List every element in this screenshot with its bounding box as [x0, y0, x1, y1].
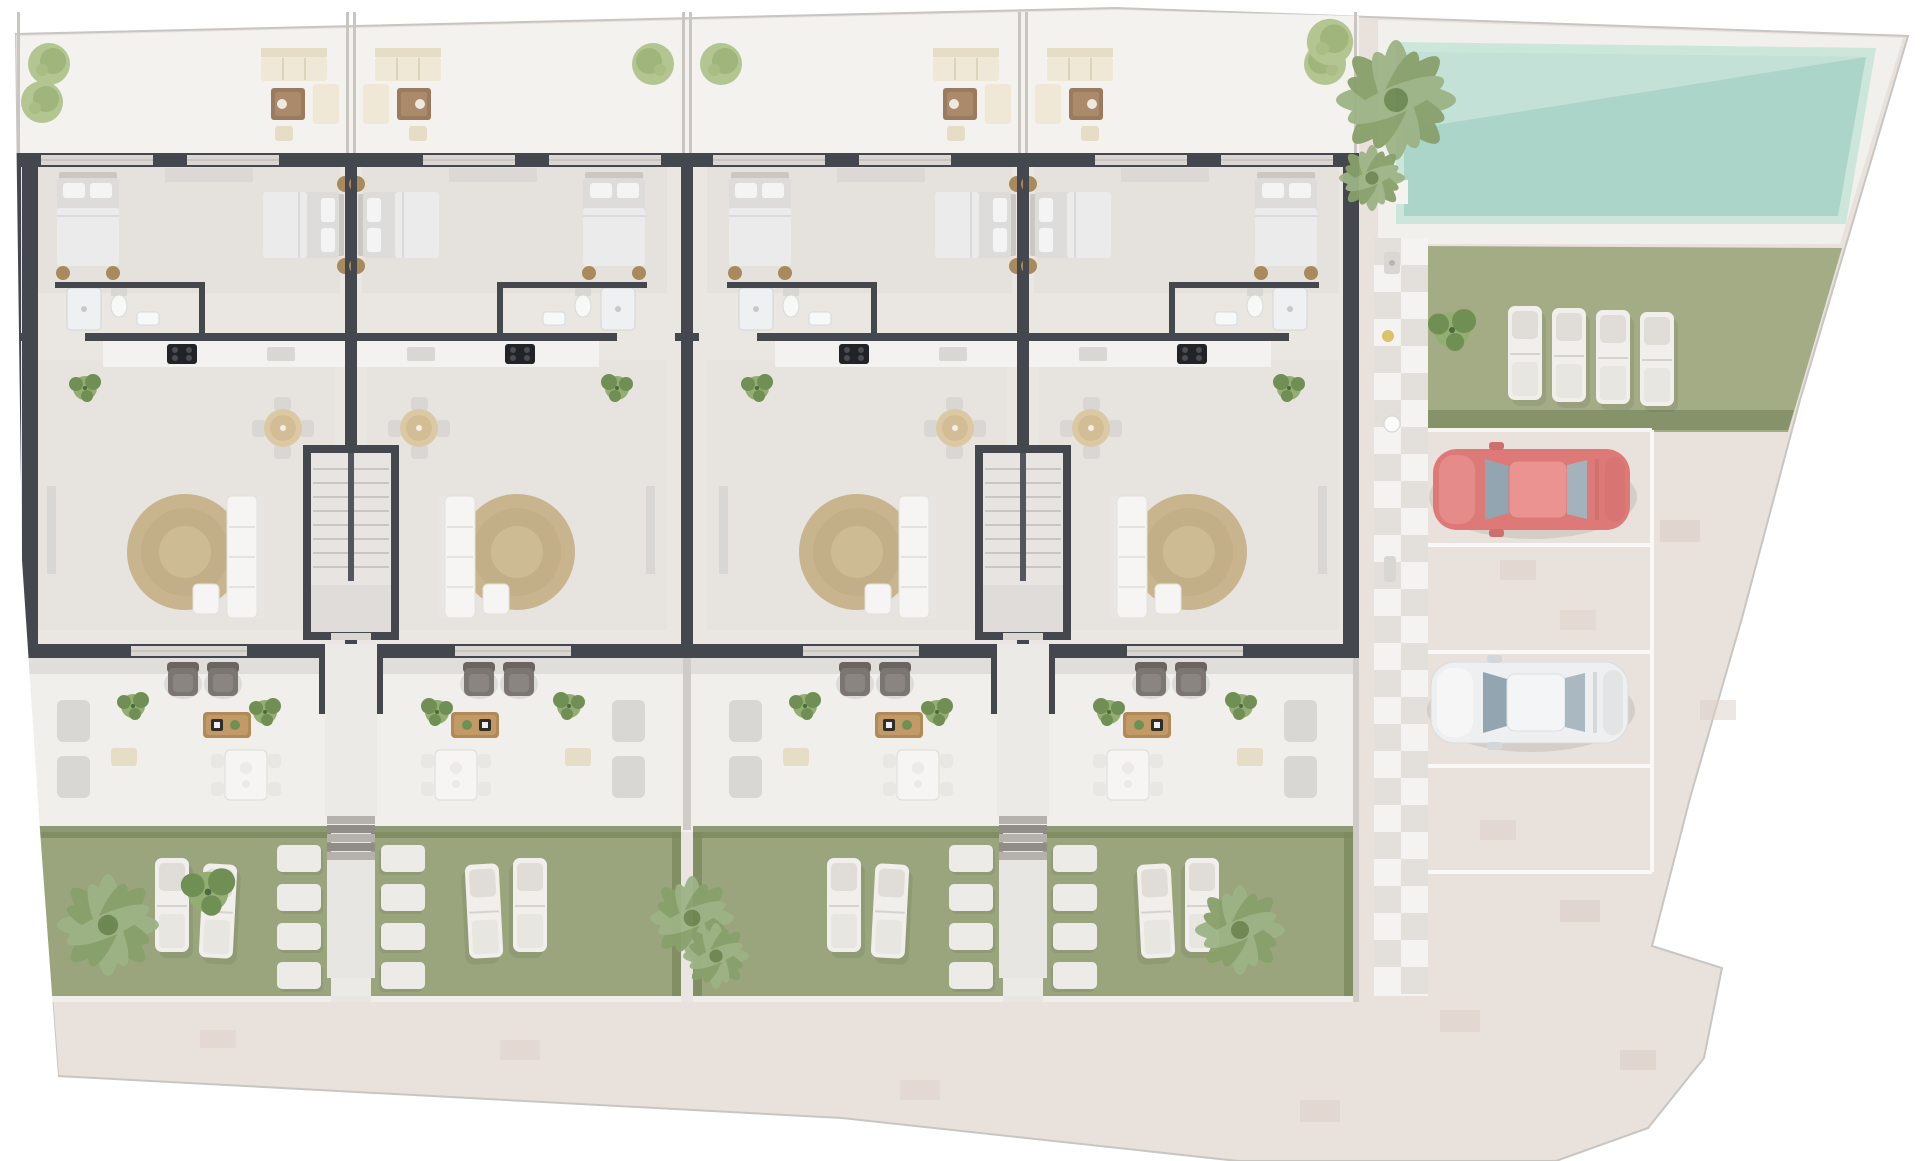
unit-pair-2	[687, 12, 1359, 1002]
front-terrace-band	[17, 10, 1359, 155]
pool-palm-icon	[1339, 145, 1405, 211]
checker-tile	[1401, 967, 1428, 994]
checker-tile	[1374, 454, 1401, 481]
entry-steps	[999, 816, 1047, 860]
checker-tile	[1401, 913, 1428, 940]
checker-tile	[1374, 724, 1401, 751]
lawn-hedge	[1424, 410, 1794, 430]
checker-tile	[1374, 778, 1401, 805]
checker-tile	[1401, 751, 1428, 778]
lawn-lounger	[1508, 306, 1546, 406]
entry-path	[325, 644, 377, 816]
checker-tile	[1374, 292, 1401, 319]
pool-palm-icon	[1336, 40, 1456, 160]
entry-wall	[991, 644, 997, 714]
unit-4	[1021, 12, 1359, 1002]
checker-tile	[1374, 670, 1401, 697]
checker-tile	[1401, 589, 1428, 616]
checker-tile	[1401, 697, 1428, 724]
round-tree-icon	[1307, 19, 1353, 65]
stair-core	[303, 445, 399, 640]
bush-icon	[21, 81, 63, 123]
checker-tile	[1401, 265, 1428, 292]
unit-2	[349, 12, 687, 1002]
unit-pair-1	[15, 12, 687, 1002]
checker-tile	[1401, 643, 1428, 670]
palm-tree-icon	[1195, 885, 1285, 975]
palm-tree-icon	[683, 923, 749, 989]
east-wall	[1343, 153, 1359, 658]
checker-tile	[1401, 373, 1428, 400]
white-car	[1427, 655, 1635, 752]
checker-tile	[1401, 535, 1428, 562]
east-garden-fence	[1353, 658, 1359, 1002]
palm-tree-icon	[57, 874, 159, 976]
site-plan-canvas	[0, 0, 1920, 1161]
checker-tile	[1374, 616, 1401, 643]
entry-wall	[319, 644, 325, 714]
lawn-lounger	[1640, 312, 1678, 412]
path-landing	[331, 978, 371, 996]
stair-core	[975, 445, 1071, 640]
path-landing	[1003, 978, 1043, 996]
checker-tile	[1374, 346, 1401, 373]
checker-tile	[1374, 940, 1401, 967]
unit-1	[15, 12, 353, 1002]
garden-path	[999, 860, 1047, 978]
unit-3	[687, 12, 1025, 1002]
pool-ladder	[1396, 180, 1408, 204]
red-car	[1429, 442, 1637, 539]
west-wall	[22, 153, 38, 658]
entry-wall	[377, 644, 383, 714]
checker-tile	[1401, 319, 1428, 346]
entry-wall	[1049, 644, 1055, 714]
checker-tile	[1401, 427, 1428, 454]
checker-tile	[1374, 508, 1401, 535]
checker-tile	[1401, 481, 1428, 508]
entry-path	[997, 644, 1049, 816]
site-plan	[0, 0, 1920, 1161]
entry-steps	[327, 816, 375, 860]
lawn-lounger	[1596, 310, 1634, 410]
checker-tile	[1374, 832, 1401, 859]
checker-tile	[1401, 859, 1428, 886]
checker-tile	[1374, 886, 1401, 913]
garden-path	[327, 860, 375, 978]
checker-tile	[1401, 805, 1428, 832]
lawn-lounger	[1552, 308, 1590, 408]
